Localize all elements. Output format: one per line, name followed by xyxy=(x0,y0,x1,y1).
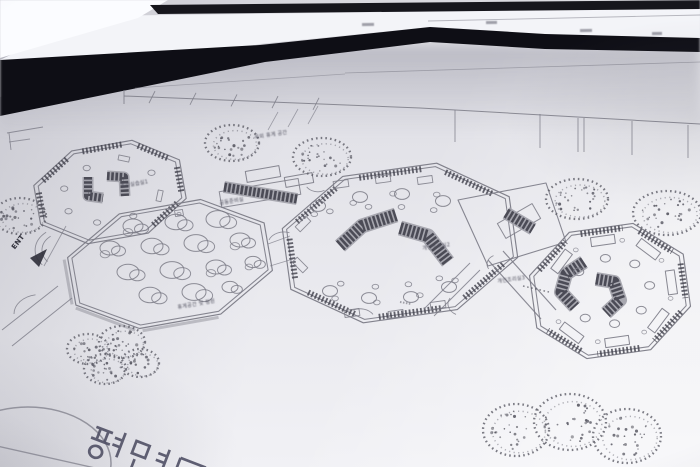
floor-plan-drawing xyxy=(0,0,700,467)
photo-of-floor-plan: 옥외 휴게 공간 조리실습실1 공동준비실 개인조리실2 개인조리실3 휴게공간… xyxy=(0,0,700,467)
